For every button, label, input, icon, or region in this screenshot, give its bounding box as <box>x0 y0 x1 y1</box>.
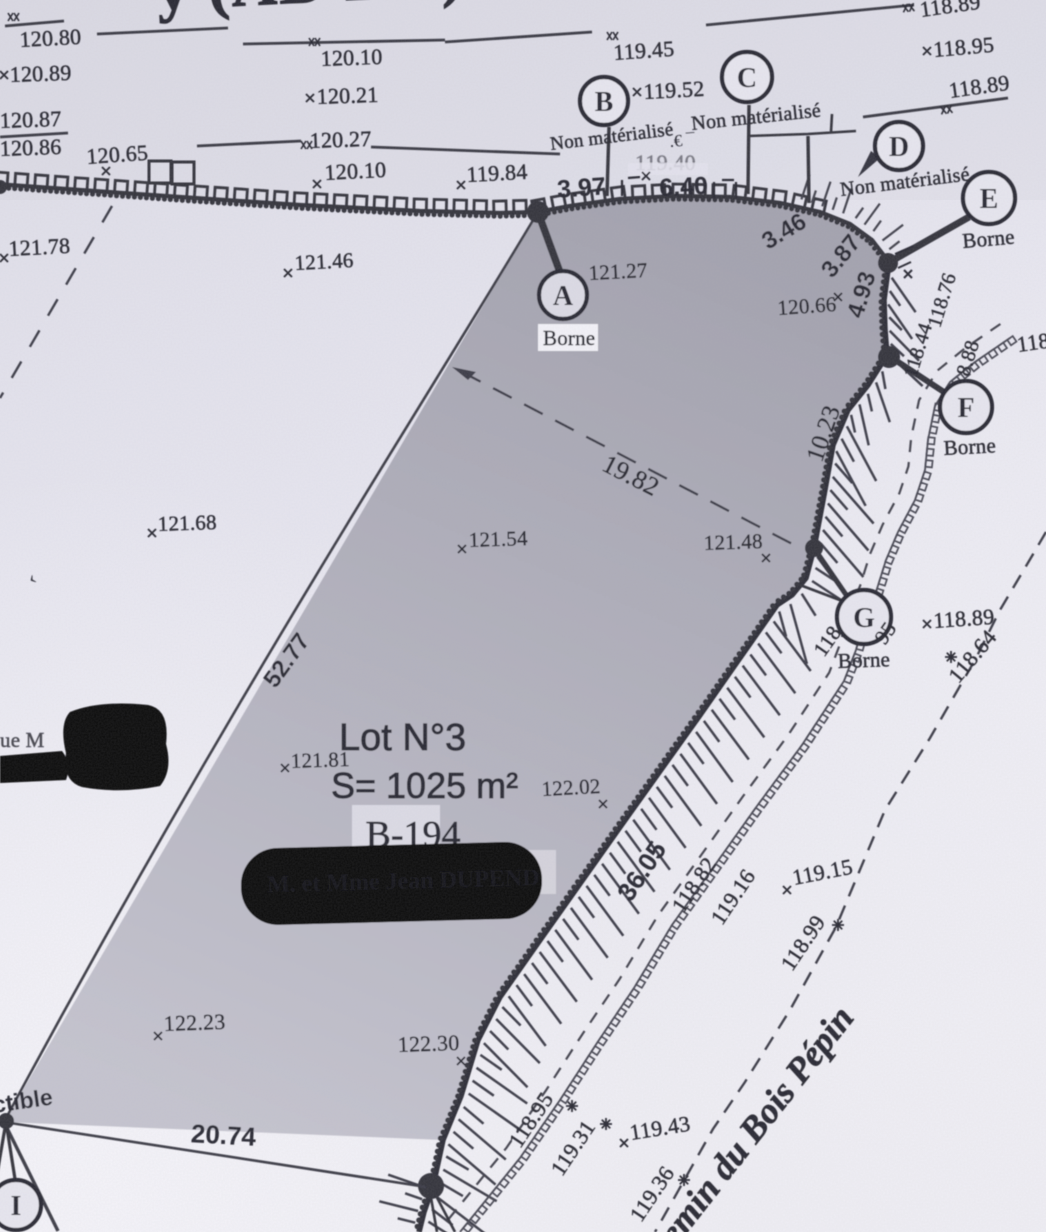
svg-text:F: F <box>957 393 974 424</box>
svg-text:121.68: 121.68 <box>157 510 217 536</box>
svg-text:20.74: 20.74 <box>190 1118 257 1151</box>
svg-text:G: G <box>853 603 875 634</box>
svg-text:D: D <box>889 132 909 163</box>
svg-text:Borne: Borne <box>543 326 595 350</box>
svg-text:6.40: 6.40 <box>659 172 709 203</box>
svg-text:120.66: 120.66 <box>777 292 837 320</box>
svg-text:3.97: 3.97 <box>556 172 607 203</box>
svg-text:120.10: 120.10 <box>324 157 387 185</box>
svg-text:121.54: 121.54 <box>468 526 528 552</box>
svg-text:120.89: 120.89 <box>9 60 72 87</box>
svg-text:S= 1025 m²: S= 1025 m² <box>331 765 518 806</box>
svg-text:120.65: 120.65 <box>86 140 149 169</box>
svg-text:120.86: 120.86 <box>0 134 62 161</box>
svg-text:Borne: Borne <box>961 225 1015 253</box>
svg-text:A: A <box>553 281 574 312</box>
svg-text:121.46: 121.46 <box>294 248 354 275</box>
svg-text:I: I <box>11 1191 22 1222</box>
svg-text:122.23: 122.23 <box>163 1009 226 1036</box>
svg-text:119.84: 119.84 <box>466 159 528 187</box>
svg-text:121.78: 121.78 <box>8 233 71 261</box>
svg-text:E: E <box>980 184 999 215</box>
svg-text:Lot N°3: Lot N°3 <box>339 717 466 759</box>
svg-text:Borne: Borne <box>837 647 890 673</box>
svg-text:121.27: 121.27 <box>588 258 648 285</box>
svg-text:120.87: 120.87 <box>0 106 62 133</box>
svg-text:122.02: 122.02 <box>541 774 601 801</box>
svg-text:ue M: ue M <box>0 728 45 752</box>
svg-text:120.21: 120.21 <box>316 82 379 109</box>
svg-text:118.95: 118.95 <box>932 32 995 62</box>
svg-text:120.27: 120.27 <box>309 126 372 153</box>
svg-text:121.48: 121.48 <box>703 529 763 555</box>
svg-text:Borne: Borne <box>943 433 997 460</box>
svg-text:120.10: 120.10 <box>320 44 383 71</box>
svg-text:122.30: 122.30 <box>397 1030 460 1057</box>
svg-text:119.52: 119.52 <box>643 76 705 104</box>
svg-text:120.80: 120.80 <box>19 24 82 52</box>
svg-text:118.: 118. <box>1015 327 1046 357</box>
svg-text:C: C <box>737 63 757 94</box>
svg-text:119.45: 119.45 <box>613 36 675 65</box>
svg-text:B: B <box>595 87 614 118</box>
